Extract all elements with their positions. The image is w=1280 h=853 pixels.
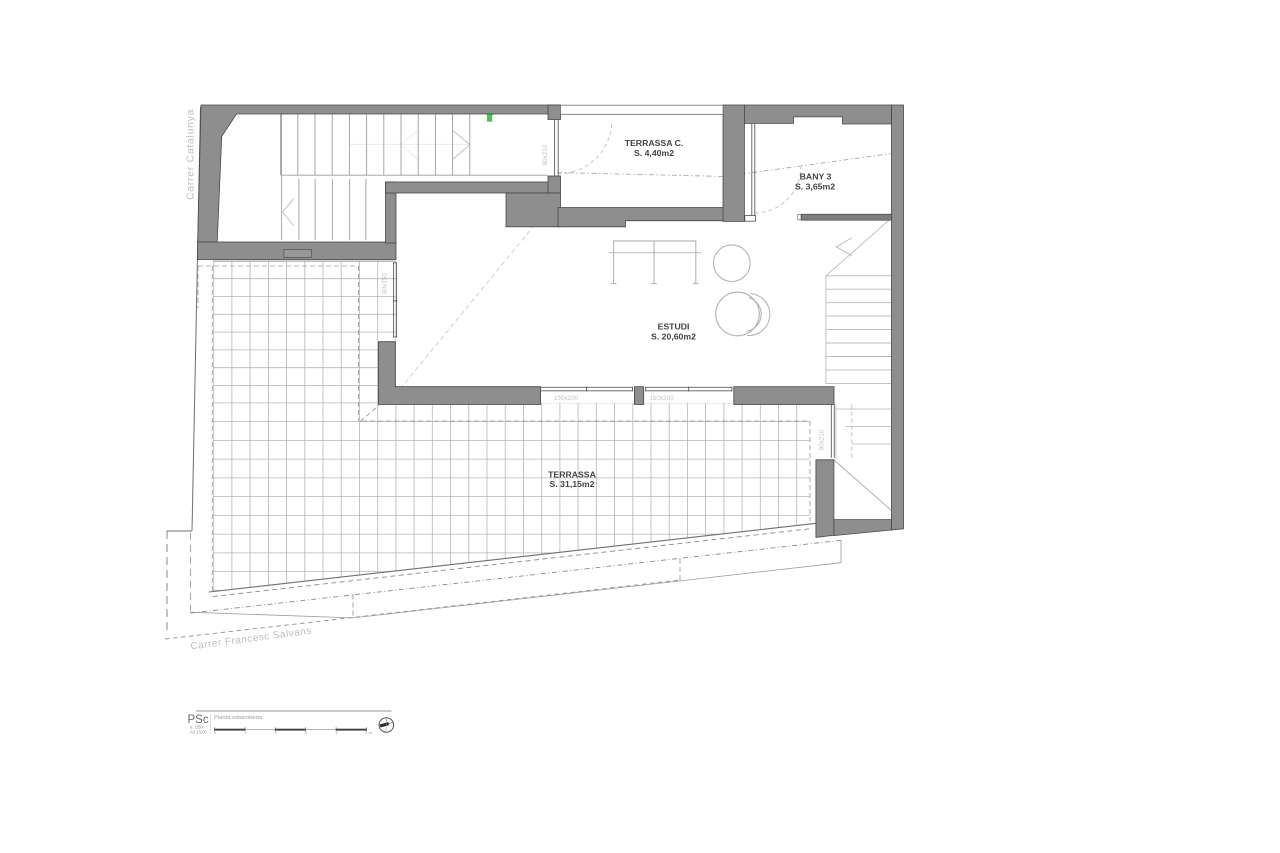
svg-text:5 m.: 5 m. [365, 730, 373, 735]
svg-text:TERRASSA C.: TERRASSA C. [625, 138, 684, 148]
svg-text:150x200: 150x200 [649, 395, 674, 402]
svg-text:S. 3,65m2: S. 3,65m2 [795, 181, 835, 191]
svg-text:ESTUDI: ESTUDI [658, 321, 690, 331]
svg-text:S. 20,60m2: S. 20,60m2 [651, 331, 696, 341]
svg-text:80x210: 80x210 [819, 429, 826, 450]
svg-text:S. 31,15m2: S. 31,15m2 [550, 479, 595, 489]
svg-text:80x250: 80x250 [382, 273, 389, 294]
svg-text:BANY 3: BANY 3 [800, 171, 832, 181]
svg-text:A3 1/100: A3 1/100 [190, 730, 207, 735]
svg-text:TERRASSA: TERRASSA [548, 469, 597, 479]
svg-text:90x210: 90x210 [542, 144, 549, 165]
svg-text:S. 4,40m2: S. 4,40m2 [634, 148, 674, 158]
svg-text:Carrer Catalunya: Carrer Catalunya [185, 109, 197, 200]
svg-text:150x200: 150x200 [554, 395, 579, 402]
svg-text:Planta sotacoberta: Planta sotacoberta [214, 715, 263, 721]
